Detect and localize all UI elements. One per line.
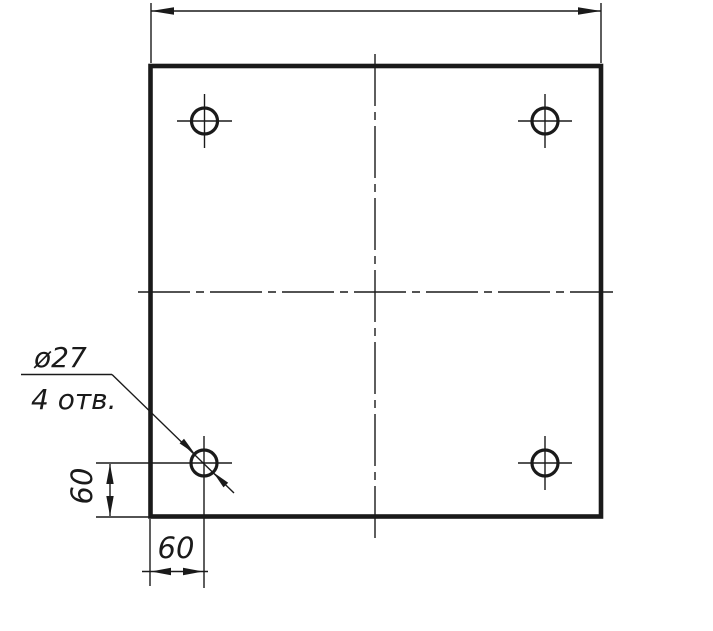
leader-arrow-upper [180,439,195,454]
bottom-dim-text: 60 [158,531,195,565]
bottom-dim-arrow-right [183,568,203,575]
callout-count-text: 4 отв. [31,383,117,416]
callout-diameter-text: ø27 [33,341,87,374]
hole-top-right [518,94,572,148]
left-dim-arrow-down [106,496,113,516]
hole-bottom-left [96,436,232,588]
plate-outline [151,66,602,517]
technical-drawing: 60 60 ø27 4 отв. [0,0,713,631]
dimension-top [151,3,601,63]
dimension-left: 60 [65,464,150,517]
left-dim-arrow-up [106,464,113,484]
hole-callout: ø27 4 отв. [21,341,234,493]
drawing-sheet: 60 60 ø27 4 отв. [0,0,713,631]
left-dim-text: 60 [65,468,99,505]
bottom-dim-arrow-left [151,568,171,575]
top-dim-arrow-left [151,7,174,15]
top-dim-arrow-right [578,7,601,15]
hole-top-left [177,94,232,148]
dimension-bottom: 60 [142,519,208,586]
hole-bottom-right [518,436,572,490]
